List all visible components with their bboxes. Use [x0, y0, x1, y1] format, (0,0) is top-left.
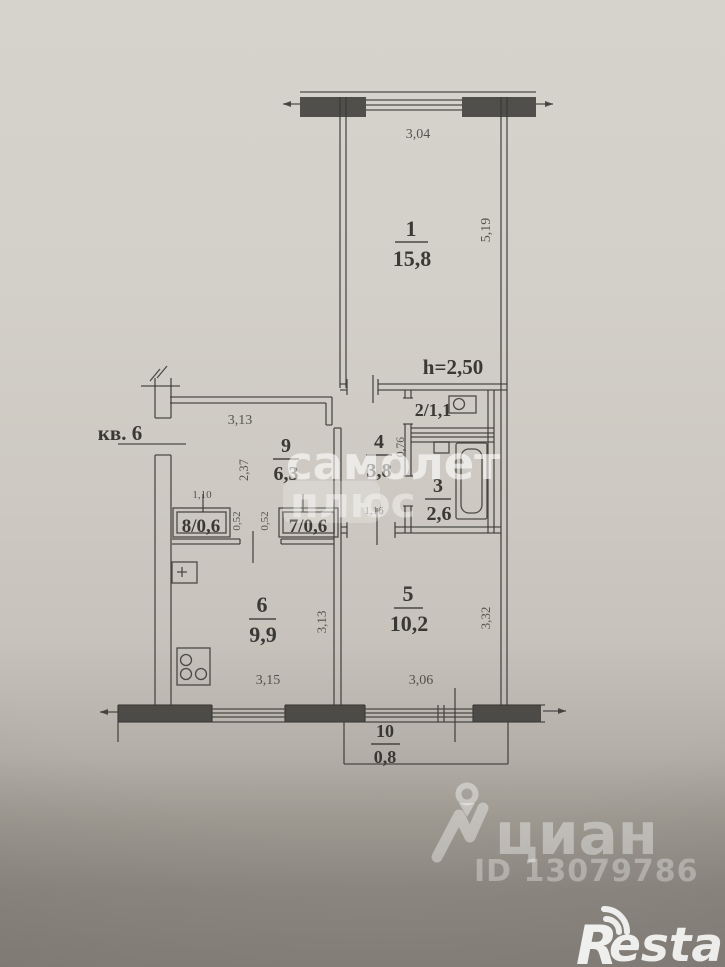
restate-logo: R estate	[576, 909, 725, 967]
dim-closet8-width: 1,10	[192, 489, 212, 501]
watermark-cian: циан ID 13079786	[437, 786, 699, 890]
dim-right-height: 5,19	[479, 218, 494, 243]
listing-id: ID 13079786	[474, 854, 699, 889]
window-room5	[365, 705, 473, 722]
ceiling-height: h=2,50	[423, 355, 483, 379]
apartment-label: кв. 6	[98, 421, 142, 445]
room-3-area: 2,6	[427, 503, 452, 525]
dim-kitchen-depth: 3,13	[314, 611, 329, 634]
room-10-area: 0,8	[374, 747, 397, 767]
room-2-label: 2/1,1	[415, 400, 452, 420]
window-room1	[366, 100, 462, 110]
restate-text: estate	[609, 918, 725, 967]
dim-room5-depth: 3,32	[478, 607, 493, 630]
dim-corridor-width: 3,13	[228, 413, 253, 428]
dim-room5-width: 3,06	[409, 673, 434, 688]
room-8-label: 8/0,6	[182, 516, 221, 537]
wall-pier	[300, 97, 366, 117]
wall-pier	[462, 97, 536, 117]
room-1-number: 1	[406, 216, 417, 241]
room-5-number: 5	[403, 581, 414, 606]
room-6-area: 9,9	[249, 622, 277, 647]
window-kitchen	[212, 705, 285, 722]
dim-gap-right: 0,52	[259, 511, 271, 530]
room-6-number: 6	[257, 592, 268, 617]
balcony-outline	[344, 688, 508, 764]
floor-plan: 1 15,8 h=2,50 кв. 6 2/1,1 9 6,3 4 3,8 3 …	[0, 0, 725, 967]
room-1-area: 15,8	[393, 246, 432, 271]
wall-break-icon	[150, 366, 167, 381]
cian-logo-icon	[437, 808, 483, 857]
dim-corridor-depth: 2,37	[237, 459, 251, 481]
dim-gap-left: 0,52	[231, 511, 243, 530]
dim-top-width: 3,04	[406, 127, 431, 142]
room-5-area: 10,2	[390, 611, 429, 636]
watermark-samolet-line2: плюс	[290, 478, 416, 527]
walls	[100, 92, 566, 764]
room-10-number: 10	[376, 721, 394, 741]
stove-icon	[177, 648, 210, 685]
dim-kitchen-width: 3,15	[256, 673, 281, 688]
floorplan-photo: 1 15,8 h=2,50 кв. 6 2/1,1 9 6,3 4 3,8 3 …	[0, 0, 725, 967]
